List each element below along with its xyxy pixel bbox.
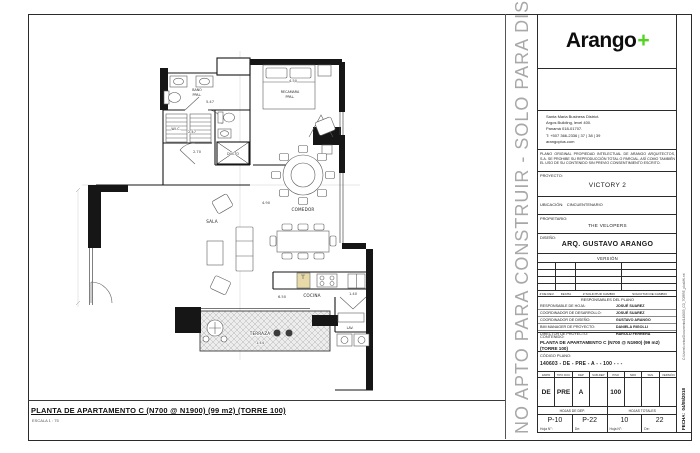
svg-text:5.47: 5.47 [206,100,214,104]
responsable-row: RESPONSABLE DE HOJA: JOSUÉ SUAREZ [538,303,677,310]
ubicacion-label: UBICACIÓN: [540,202,563,207]
title-block: Arango+ Santa Maria Business District. A… [537,14,677,433]
svg-text:COMEDOR: COMEDOR [292,207,315,212]
kitchen [297,273,365,288]
arango-logo: Arango+ [538,14,677,68]
svg-text:PPAL.: PPAL. [193,93,202,97]
address-section: Santa Maria Business District. Argos Bui… [538,111,677,150]
file-path-vertical: C:\Users\corina\Documents\140603_CD_TORR… [682,273,686,360]
codigo-value: 140603 - DE - PRE - A - - 100 - - - [540,361,622,367]
code-grid-values: DE PRE A 100 [538,378,677,407]
hoja-tot-n: 10 Hoja N°: [608,415,643,432]
floor-plan: RECAMARA PPAL. BAÑO PPAL. W.I.C. DUCTO C… [60,45,440,405]
svg-text:W.I.C.: W.I.C. [171,127,180,131]
svg-text:4.50: 4.50 [289,79,298,83]
sheet-scale: ESCALA 1 : 75 [32,418,59,423]
watermark-text: NO APTO PARA CONSTRUIR - SOLO PARA DISEÑ… [512,0,533,434]
hojas-values: P-10 Hoja N°: P-22 De: 10 Hoja N°: 22 De… [538,415,677,432]
dining-round-table [272,146,335,205]
svg-text:LAV.: LAV. [347,326,354,330]
svg-text:SALA: SALA [206,219,218,224]
bath2-fixtures [218,112,235,138]
proyecto-label: PROYECTO: [540,173,563,178]
contenido-section: CONTENIDO: PLANTA DE APARTAMENTO C (N700… [538,333,677,352]
svg-text:COCINA: COCINA [303,293,320,298]
diseno-value: ARQ. GUSTAVO ARANGO [538,241,677,248]
responsable-row: COORDINADOR DE DISEÑO: GUSTAVO ARANGO [538,317,677,324]
propietario-section: PROPIETARIO: THE VELOPERS [538,215,677,234]
dimension-labels: 5.47 4.50 2.47 2.70 4.90 6.50 1.44 1.40 [188,79,358,345]
logo-text: Arango [566,29,637,53]
svg-text:DUCTO: DUCTO [227,152,239,156]
svg-text:2.70: 2.70 [193,150,202,154]
terrace [200,309,330,352]
codigo-section: CÓDIGO PLANO: 140603 - DE - PRE - A - - … [538,352,677,372]
logo-plus-icon: + [637,29,649,53]
svg-text:6.50: 6.50 [278,295,287,299]
legal-section: PLANO ORIGINAL PROPIEDAD INTELECTUAL DE … [538,150,677,172]
ubicacion-value: CINCUENTENARIO [567,202,603,207]
sheet-title-zone: PLANTA DE APARTAMENTO C (N700 @ N1900) (… [28,400,505,440]
fecha-strip [676,14,692,433]
responsables-table: RESPONSABLE DE HOJA: JOSUÉ SUAREZ COORDI… [538,303,677,333]
hoja-dep-n: P-10 Hoja N°: [538,415,573,432]
legal-text: PLANO ORIGINAL PROPIEDAD INTELECTUAL DE … [538,150,677,166]
responsable-row: COORDINADOR DE DESARROLLO: JOSUÉ SUAREZ [538,310,677,317]
proyecto-section: PROYECTO: VICTORY 2 [538,172,677,197]
address-line: arangoplus.com [546,139,677,145]
svg-text:RECAMARA: RECAMARA [281,90,300,94]
svg-text:2.47: 2.47 [188,130,196,134]
drawing-sheet: RECAMARA PPAL. BAÑO PPAL. W.I.C. DUCTO C… [0,0,700,453]
hoja-dep-de: P-22 De: [573,415,608,432]
hojas-headers: HOJAS DE DEP. HOJAS TOTALES [538,407,677,415]
svg-text:BAÑO: BAÑO [192,87,202,92]
diseno-section: DISEÑO: ARQ. GUSTAVO ARANGO [538,234,677,254]
stamp-section [538,69,677,111]
hoja-tot-de: 22 De: [642,415,677,432]
version-table [538,263,677,291]
svg-text:4.90: 4.90 [262,201,271,205]
dining-rect-table [270,224,336,259]
contenido-label: CONTENIDO: [540,334,564,339]
responsable-row: BIM MANAGER DE PROYECTO: DANIELA RIGOLLI [538,324,677,331]
contenido-value: PLANTA DE APARTAMENTO C (N700 @ N1900) (… [540,340,660,351]
logo-section: Arango+ [538,14,677,69]
propietario-value: THE VELOPERS [538,223,677,228]
svg-text:TERRAZA: TERRAZA [249,331,271,336]
svg-text:1.44: 1.44 [256,341,265,345]
proyecto-value: VICTORY 2 [538,182,677,189]
svg-text:1.40: 1.40 [349,292,358,296]
version-header: VERSIÓN [538,254,677,263]
diseno-label: DISEÑO: [540,235,556,240]
fecha-vertical: FECHA: 04/05/2018 [681,388,686,430]
sheet-title: PLANTA DE APARTAMENTO C (N700 @ N1900) (… [31,406,286,415]
svg-text:PPAL.: PPAL. [286,95,295,99]
living-furniture [207,193,253,295]
codigo-label: CÓDIGO PLANO: [540,353,571,358]
propietario-label: PROPIETARIO: [540,216,567,221]
ubicacion-section: UBICACIÓN: CINCUENTENARIO [538,197,677,215]
